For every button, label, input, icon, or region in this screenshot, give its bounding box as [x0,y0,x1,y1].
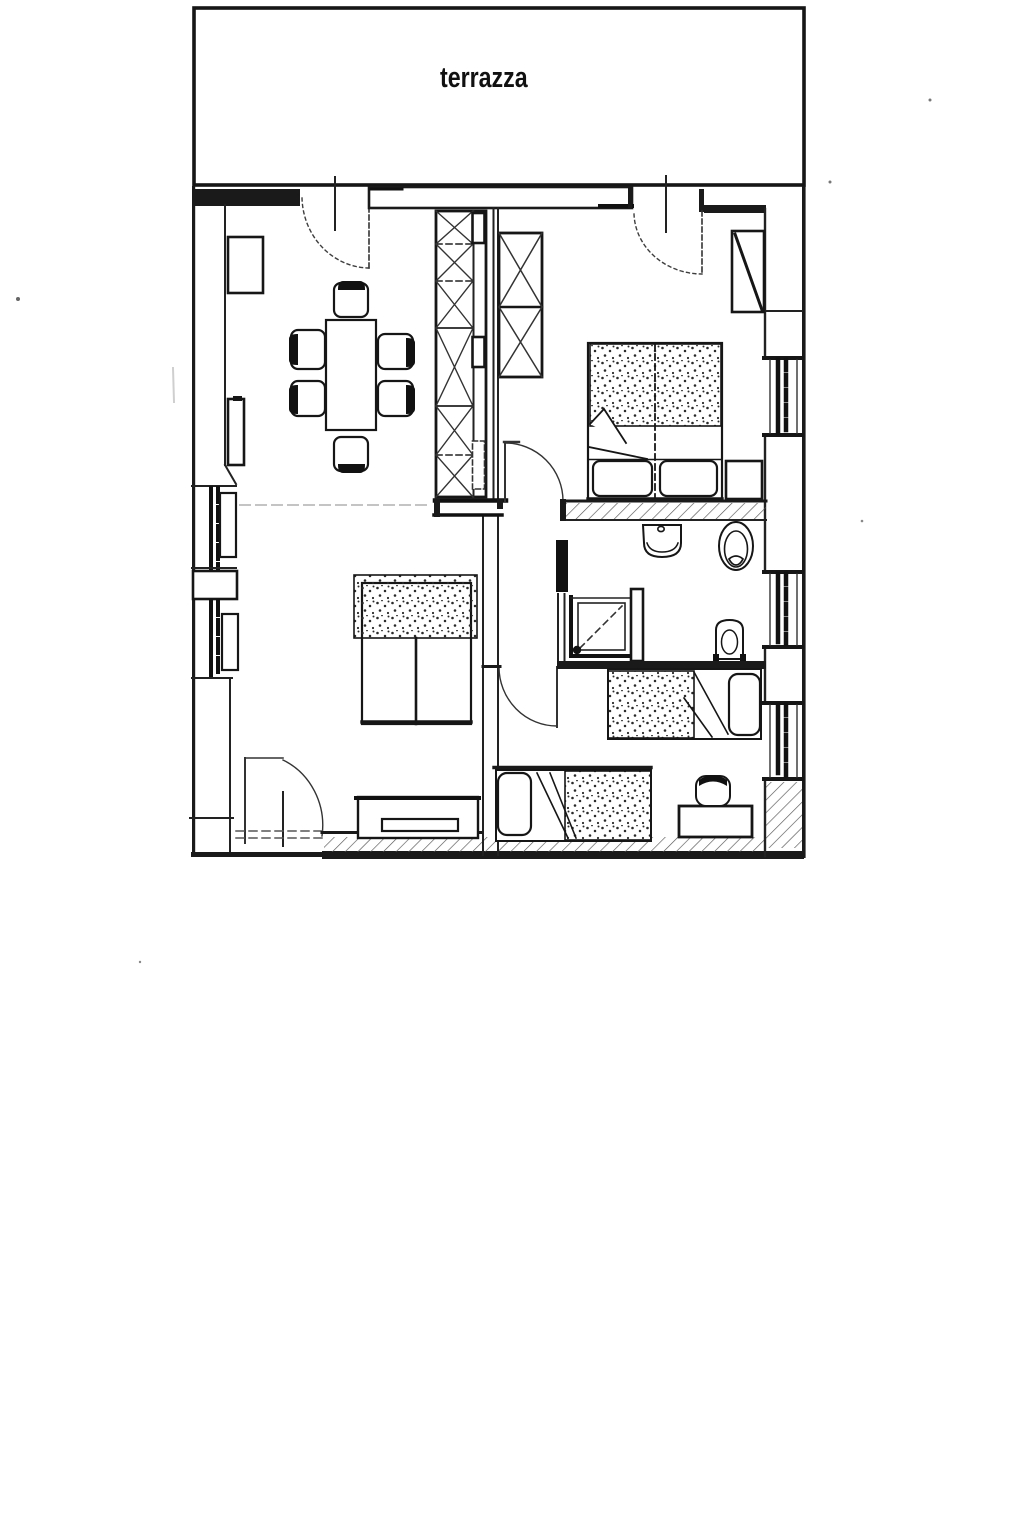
svg-text:terrazza: terrazza [440,60,528,93]
